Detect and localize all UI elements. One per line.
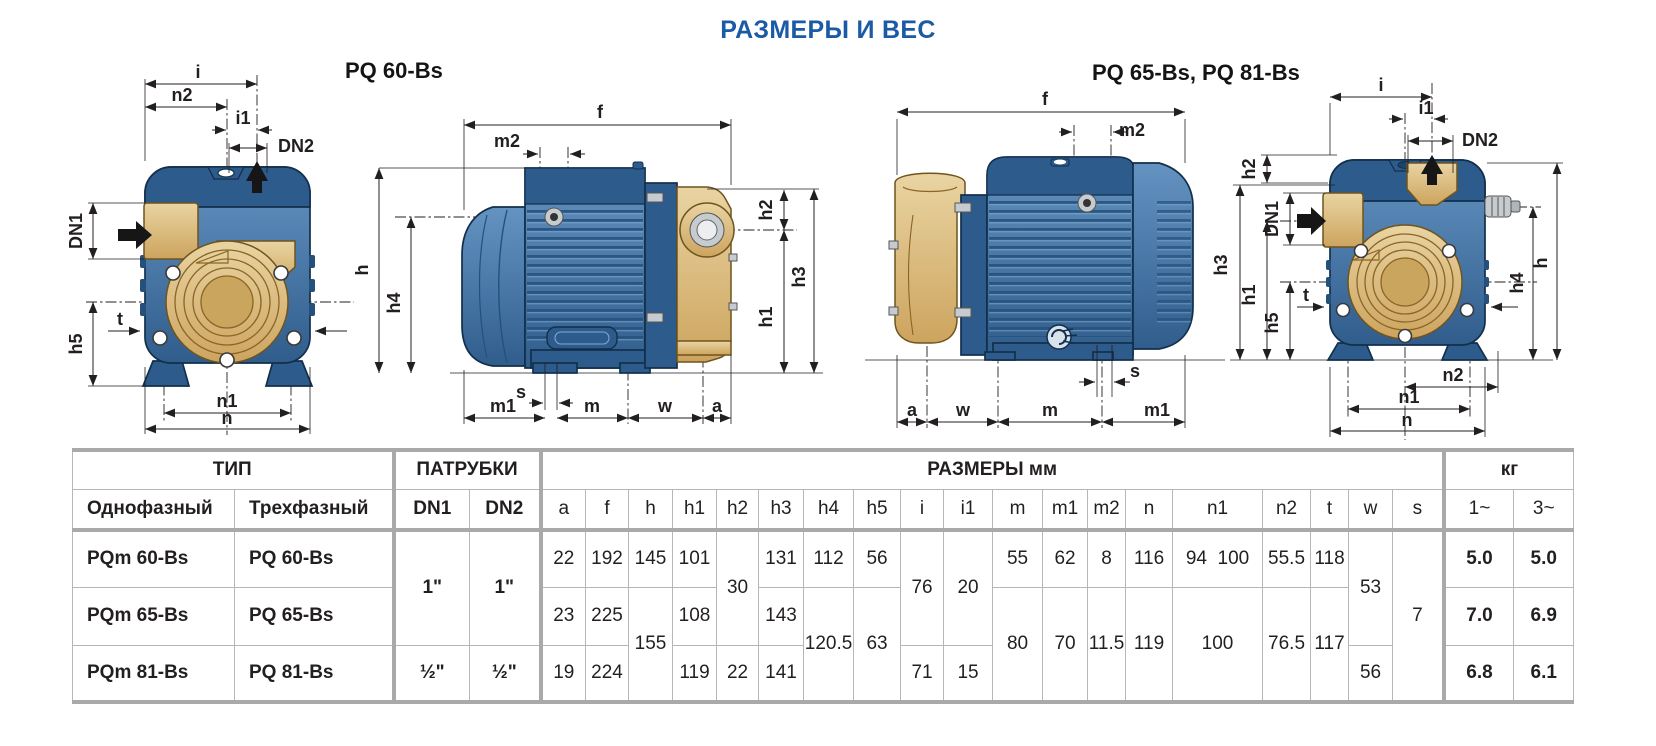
col-t: t [1311, 489, 1349, 530]
cell-f: 192 [586, 530, 629, 587]
dim-label-a: a [907, 400, 918, 420]
section-dimensions: РАЗМЕРЫ мм [541, 450, 1444, 489]
dim-label-h3: h3 [789, 266, 809, 287]
inlet-flow-arrow [1297, 207, 1326, 235]
pump-bracket [955, 195, 987, 355]
col-n: n [1126, 489, 1173, 530]
cell-kg1: 5.0 [1444, 530, 1514, 587]
col-kg-3ph: 3~ [1514, 489, 1574, 530]
dim-label-h: h [1531, 258, 1551, 269]
cell-tri: PQ 65-Bs [235, 587, 394, 645]
col-m: m [993, 489, 1043, 530]
cell-t: 117 [1311, 587, 1349, 702]
cell-n2: 55.5 [1263, 530, 1311, 587]
cell-h1: 108 [673, 587, 717, 645]
dim-label-m: m [1042, 400, 1058, 420]
col-n1: n1 [1173, 489, 1263, 530]
cell-n: 119 [1126, 587, 1173, 702]
dim-label-dn1: DN1 [66, 213, 86, 249]
cell-h1: 119 [673, 645, 717, 702]
dim-label-s: s [516, 382, 526, 402]
cell-t: 118 [1311, 530, 1349, 587]
cell-kg3: 5.0 [1514, 530, 1574, 587]
dim-label-w: w [657, 396, 673, 416]
cell-mono: PQm 81-Bs [73, 645, 235, 702]
dim-label-a: a [712, 396, 723, 416]
inlet-duct-brass [889, 173, 965, 343]
cell-h: 145 [629, 530, 673, 587]
page-title: РАЗМЕРЫ И ВЕС [0, 16, 1656, 45]
dim-label-h: h [355, 265, 372, 276]
dim-label-t: t [1303, 285, 1309, 305]
col-s: s [1393, 489, 1444, 530]
dim-label-dn2: DN2 [1462, 130, 1498, 150]
col-a: a [541, 489, 586, 530]
motor [462, 162, 650, 373]
table-section-header-row: ТИП ПАТРУБКИ РАЗМЕРЫ мм кг [73, 450, 1574, 489]
cell-h1: 101 [673, 530, 717, 587]
cell-m2: 11.5 [1088, 587, 1126, 702]
cell-n2: 76.5 [1263, 587, 1311, 702]
section-ports: ПАТРУБКИ [394, 450, 541, 489]
col-h: h [629, 489, 673, 530]
cell-h4: 120.5 [804, 587, 854, 702]
dim-label-h2: h2 [756, 199, 776, 220]
col-h5: h5 [854, 489, 901, 530]
col-w: w [1349, 489, 1393, 530]
col-dn2: DN2 [470, 489, 541, 530]
cell-h3: 143 [759, 587, 804, 645]
dim-label-h5: h5 [66, 333, 86, 354]
cell-h2: 22 [717, 645, 759, 702]
col-m1: m1 [1043, 489, 1088, 530]
cell-i1: 20 [944, 530, 993, 645]
section-type: ТИП [73, 450, 394, 489]
pump-end [645, 183, 737, 368]
cell-m: 80 [993, 587, 1043, 702]
dim-label-m1: m1 [490, 396, 516, 416]
col-n2: n2 [1263, 489, 1311, 530]
cell-w: 56 [1349, 645, 1393, 702]
col-h3: h3 [759, 489, 804, 530]
dim-label-i1: i1 [235, 108, 250, 128]
cell-tri: PQ 60-Bs [235, 530, 394, 587]
cell-i1: 15 [944, 645, 993, 702]
cell-dn1: ½" [394, 645, 470, 702]
cell-h3: 131 [759, 530, 804, 587]
dim-label-n2: n2 [1442, 365, 1463, 385]
dim-label-i: i [195, 62, 200, 82]
cell-h: 155 [629, 587, 673, 702]
cell-dn2: 1" [470, 530, 541, 645]
cell-dn2: ½" [470, 645, 541, 702]
cell-h4: 112 [804, 530, 854, 587]
dimensions-weight-table: ТИП ПАТРУБКИ РАЗМЕРЫ мм кг Однофазный Тр… [72, 448, 1574, 704]
col-i: i [901, 489, 944, 530]
dim-label-s: s [1130, 361, 1140, 381]
col-h2: h2 [717, 489, 759, 530]
cell-kg3: 6.9 [1514, 587, 1574, 645]
cell-n1: 94 100 [1173, 530, 1263, 587]
pedrollo-logo-icon [1047, 325, 1071, 349]
cell-a: 23 [541, 587, 586, 645]
spec-table: ТИП ПАТРУБКИ РАЗМЕРЫ мм кг Однофазный Тр… [72, 448, 1574, 704]
dim-label-m: m [584, 396, 600, 416]
col-three-phase: Трехфазный [235, 489, 394, 530]
dim-label-n2: n2 [171, 85, 192, 105]
col-m2: m2 [1088, 489, 1126, 530]
dim-label-m2: m2 [494, 131, 520, 151]
cell-s: 7 [1393, 530, 1444, 702]
cell-tri: PQ 81-Bs [235, 645, 394, 702]
dim-label-f: f [1042, 89, 1049, 109]
dim-label-f: f [597, 102, 604, 122]
dim-label-dn1: DN1 [1262, 201, 1282, 237]
dim-label-h4: h4 [1507, 272, 1527, 293]
dim-label-dn2: DN2 [278, 136, 314, 156]
cell-f: 225 [586, 587, 629, 645]
cell-dn1: 1" [394, 530, 470, 645]
cable-gland [1485, 196, 1520, 217]
cell-kg1: 7.0 [1444, 587, 1514, 645]
col-kg-1ph: 1~ [1444, 489, 1514, 530]
cell-kg3: 6.1 [1514, 645, 1574, 702]
cell-f: 224 [586, 645, 629, 702]
cell-i: 76 [901, 530, 944, 645]
cell-w: 53 [1349, 530, 1393, 645]
dim-label-m2: m2 [1119, 120, 1145, 140]
dim-label-m1: m1 [1144, 400, 1170, 420]
col-f: f [586, 489, 629, 530]
dim-label-n1: n1 [1398, 387, 1419, 407]
motor [985, 157, 1193, 360]
dim-label-h4: h4 [384, 292, 404, 313]
section-weight: кг [1444, 450, 1574, 489]
table-row: PQm 60-Bs PQ 60-Bs 1" 1" 22 192 145 101 … [73, 530, 1574, 587]
col-single-phase: Однофазный [73, 489, 235, 530]
dim-label-h5: h5 [1262, 312, 1282, 333]
cell-n1: 100 [1173, 587, 1263, 702]
cell-m: 55 [993, 530, 1043, 587]
dim-label-t: t [117, 309, 123, 329]
pump-front-view-pq60: i n2 i1 DN2 DN1 h5 t n1 n [60, 55, 390, 440]
cell-n: 116 [1126, 530, 1173, 587]
cell-h5: 56 [854, 530, 901, 587]
col-i1: i1 [944, 489, 993, 530]
cell-a: 22 [541, 530, 586, 587]
cell-h5: 63 [854, 587, 901, 702]
dim-label-h3: h3 [1211, 254, 1231, 275]
dim-label-h2: h2 [1239, 158, 1259, 179]
dim-label-h1: h1 [1239, 284, 1259, 305]
dim-label-n: n [222, 408, 233, 428]
dim-label-i1: i1 [1418, 98, 1433, 118]
cell-mono: PQm 65-Bs [73, 587, 235, 645]
cell-i: 71 [901, 645, 944, 702]
cell-h3: 141 [759, 645, 804, 702]
cell-mono: PQm 60-Bs [73, 530, 235, 587]
dim-label-n: n [1402, 410, 1413, 430]
col-h1: h1 [673, 489, 717, 530]
cell-m2: 8 [1088, 530, 1126, 587]
cell-m1: 62 [1043, 530, 1088, 587]
col-h4: h4 [804, 489, 854, 530]
dim-label-h1: h1 [756, 306, 776, 327]
table-subheader-row: Однофазный Трехфазный DN1 DN2 a f h h1 h… [73, 489, 1574, 530]
cell-a: 19 [541, 645, 586, 702]
col-dn1: DN1 [394, 489, 470, 530]
pump-front-view-pq81: i i1 DN2 h2 DN1 h3 h1 h5 t h4 h n2 n1 n [1185, 55, 1656, 445]
cell-m1: 70 [1043, 587, 1088, 702]
dim-label-w: w [955, 400, 971, 420]
dim-label-i: i [1378, 75, 1383, 95]
pump-side-view-pq60: f m2 h h4 h2 h1 h3 s m1 m w a [355, 55, 830, 440]
cell-h2: 30 [717, 530, 759, 645]
cell-kg1: 6.8 [1444, 645, 1514, 702]
